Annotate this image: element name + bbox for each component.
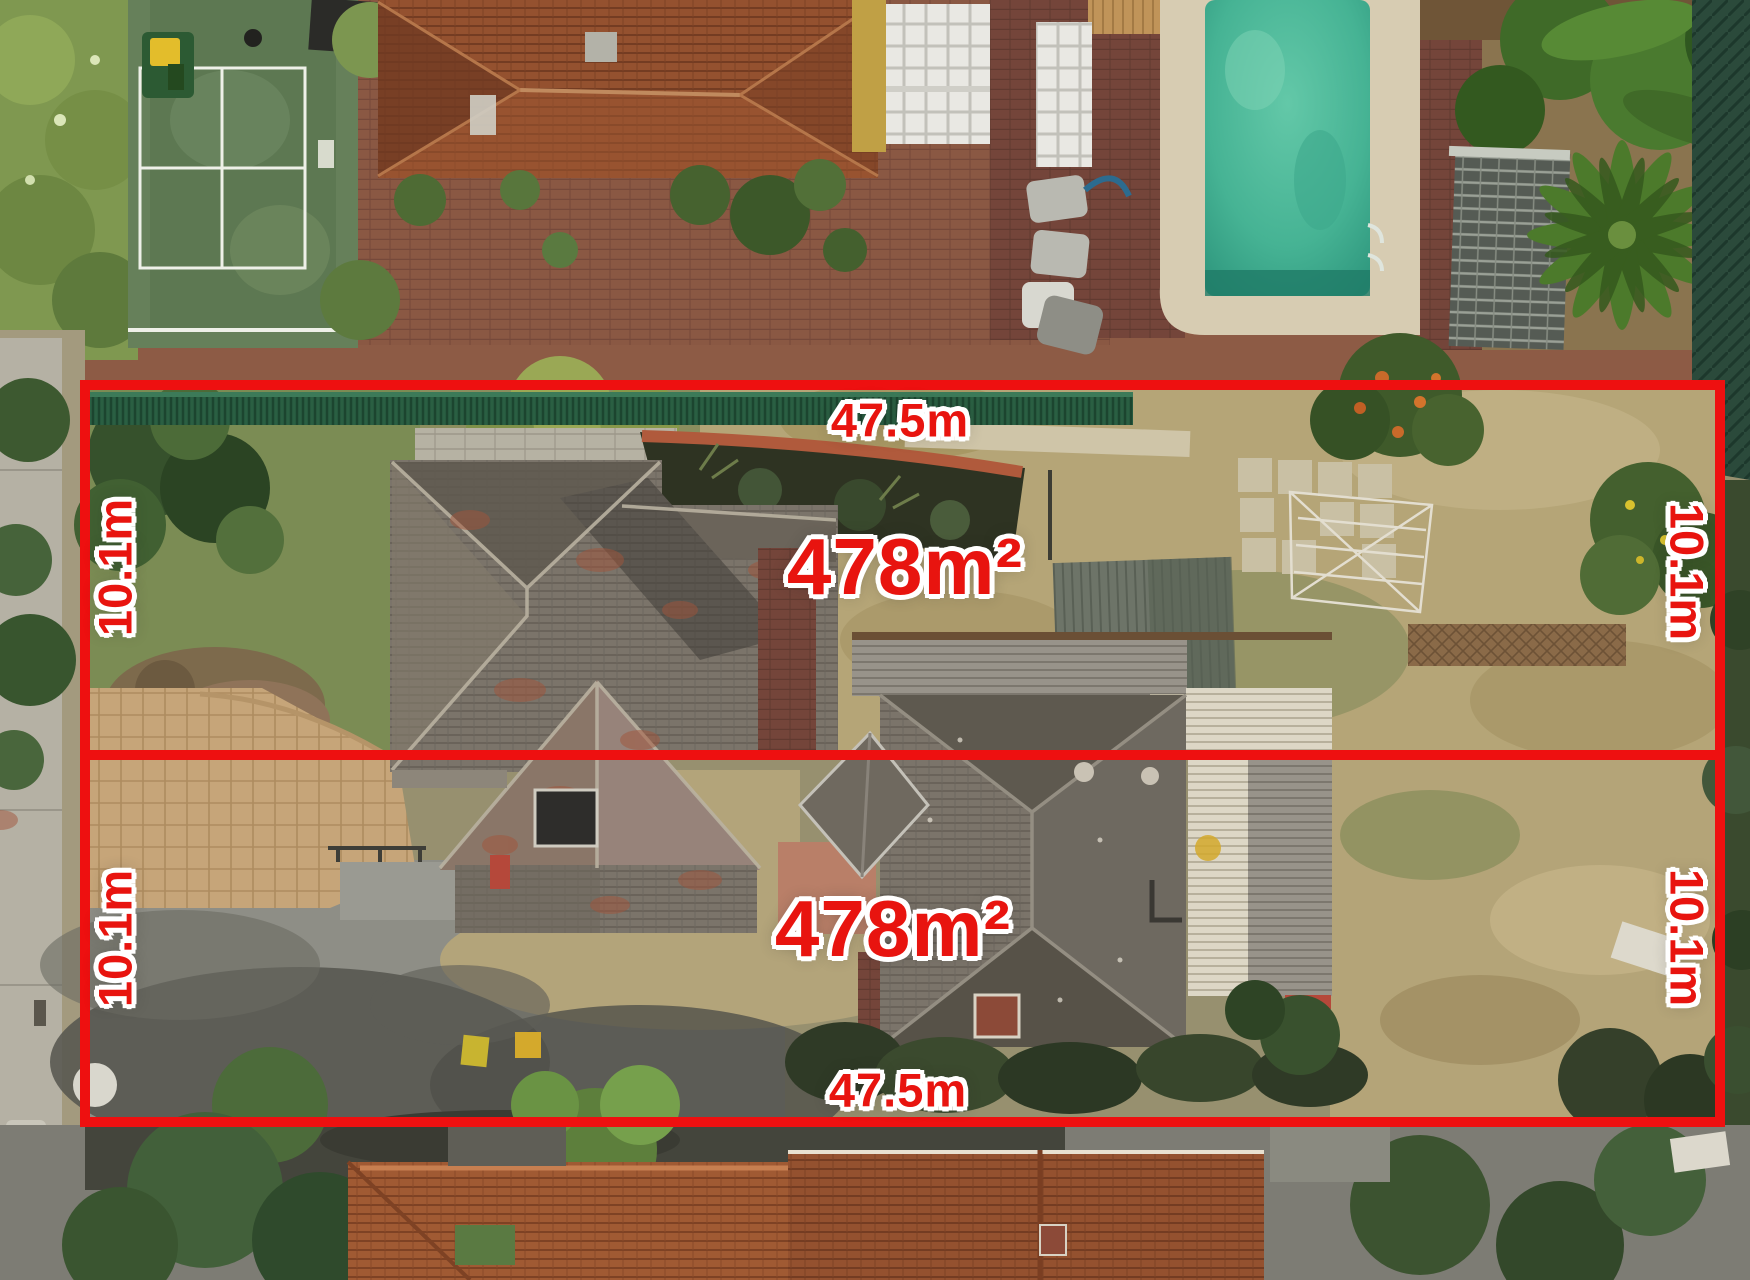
solar-panel xyxy=(1036,22,1092,167)
chimney xyxy=(975,995,1019,1037)
lot1-area-label: 478m² xyxy=(787,521,1023,613)
yellow-marker xyxy=(515,1032,541,1058)
white-pergola xyxy=(886,4,990,144)
lot1-depth-left-label: 10.1m xyxy=(88,498,143,636)
limestone-wall xyxy=(415,428,677,464)
timber-deck xyxy=(1088,0,1170,34)
lot2-frontage-label: 47.5m xyxy=(829,1063,967,1118)
swimming-pool xyxy=(1205,0,1370,296)
lot1-depth-right-label: 10.1m xyxy=(1660,503,1715,641)
lot2-depth-right-label: 10.1m xyxy=(1660,869,1715,1007)
lot1-frontage-label: 47.5m xyxy=(831,393,969,448)
patio-roof xyxy=(1188,752,1248,996)
lattice-fence xyxy=(1408,624,1626,666)
chimney xyxy=(585,32,617,62)
lot2-area-label: 478m² xyxy=(775,883,1011,975)
yellow-structure xyxy=(852,0,886,152)
bottom-neighbour-roof xyxy=(348,1150,1264,1280)
skylight xyxy=(535,790,597,846)
aerial-lot-photo: 47.5m 478m² 10.1m 10.1m 478m² 10.1m 10.1… xyxy=(0,0,1750,1280)
lot2-depth-left-label: 10.1m xyxy=(88,869,143,1007)
neighbour-house-roof xyxy=(378,0,878,178)
mower xyxy=(142,32,194,98)
